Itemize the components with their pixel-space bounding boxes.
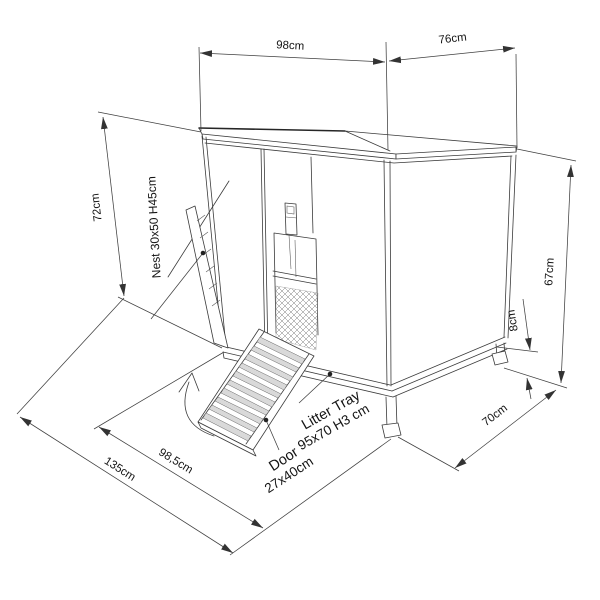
nest-label-text: Nest 30x50 H45cm: [144, 176, 163, 279]
dimension-base-depth: 70cm: [398, 390, 556, 471]
dim-135cm-text: 135cm: [102, 455, 138, 484]
door-leader-dot: [264, 418, 269, 423]
dim-70cm-text: 70cm: [480, 402, 510, 429]
back-right-foot: [492, 351, 508, 365]
litter-tray-callout: Litter Tray 95x70 H3 cm: [287, 372, 371, 453]
dim-8cm-text: 8cm: [505, 309, 520, 332]
dim-72cm-text: 72cm: [89, 193, 104, 222]
nest-leader-dot: [201, 251, 206, 256]
dimension-roof-front-width: 98cm: [199, 39, 388, 150]
dimension-diagram: 98cm 76cm 72cm 67cm 8cm 70cm: [0, 0, 600, 600]
right-wall-face: [391, 156, 512, 385]
dim-98cm-text: 98cm: [276, 39, 305, 52]
ramp: [198, 329, 314, 456]
dim-67cm-text: 67cm: [543, 257, 556, 286]
hutch-line-drawing: 98cm 76cm 72cm 67cm 8cm 70cm: [0, 0, 600, 600]
front-right-foot: [382, 423, 401, 438]
dim-76cm-text: 76cm: [438, 31, 467, 46]
dim-98-5cm-text: 98,5cm: [156, 446, 194, 476]
litter-leader-dot: [328, 372, 333, 377]
dimension-roof-side-depth: 76cm: [389, 31, 517, 148]
